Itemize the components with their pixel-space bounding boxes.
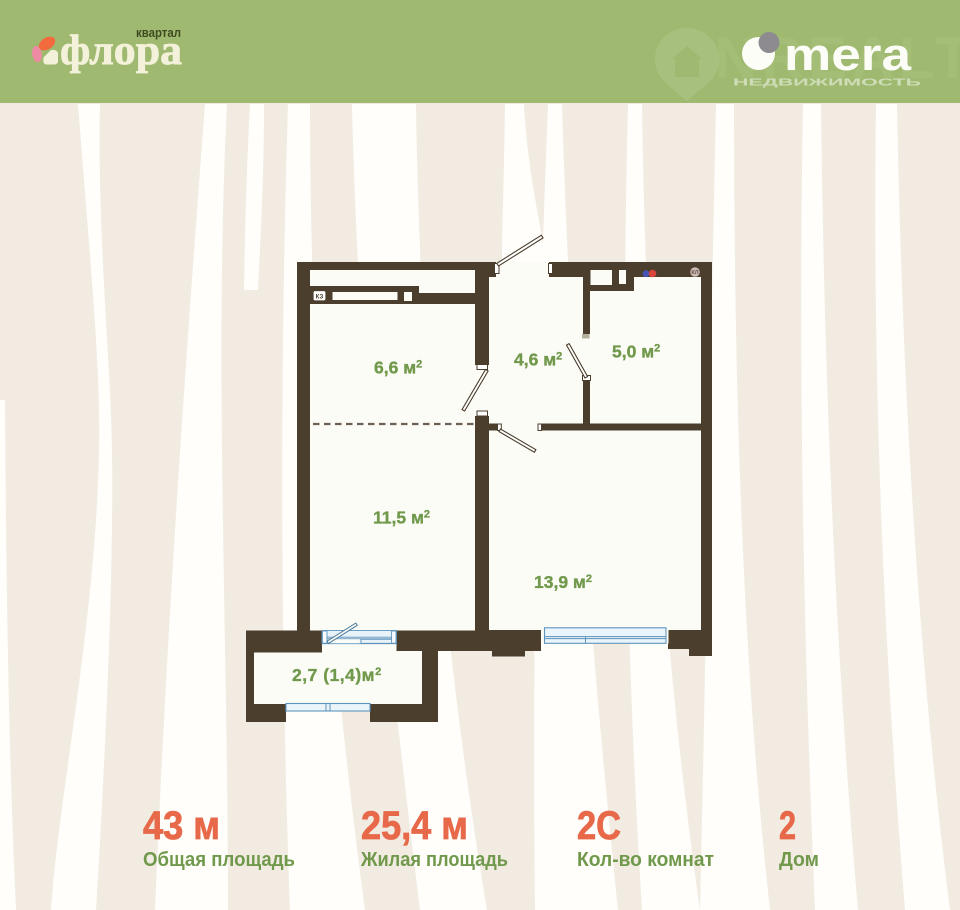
- svg-text:2: 2: [779, 804, 796, 848]
- svg-text:КЗ: КЗ: [316, 295, 324, 301]
- svg-text:43 м: 43 м: [143, 804, 220, 848]
- svg-text:4,6 м2: 4,6 м2: [514, 350, 562, 370]
- svg-text:Дом: Дом: [779, 848, 819, 871]
- svg-text:11,5 м2: 11,5 м2: [373, 508, 430, 528]
- svg-text:5,0 м2: 5,0 м2: [612, 342, 660, 362]
- svg-text:Жилая площадь: Жилая площадь: [360, 848, 508, 871]
- svg-text:6,6 м2: 6,6 м2: [374, 358, 422, 378]
- svg-text:Общая площадь: Общая площадь: [143, 848, 295, 871]
- svg-text:25,4 м: 25,4 м: [361, 804, 468, 848]
- svg-text:НЕДВИЖИМОСТЬ: НЕДВИЖИМОСТЬ: [733, 77, 922, 89]
- svg-text:13,9 м2: 13,9 м2: [534, 572, 592, 592]
- svg-text:Кол-во комнат: Кол-во комнат: [577, 848, 714, 871]
- svg-text:2С: 2С: [577, 804, 621, 848]
- svg-text:mera: mera: [784, 29, 912, 80]
- svg-text:2,7 (1,4)м2: 2,7 (1,4)м2: [292, 665, 382, 685]
- svg-text:квартал: квартал: [136, 26, 181, 40]
- svg-text:КЛ: КЛ: [691, 270, 698, 276]
